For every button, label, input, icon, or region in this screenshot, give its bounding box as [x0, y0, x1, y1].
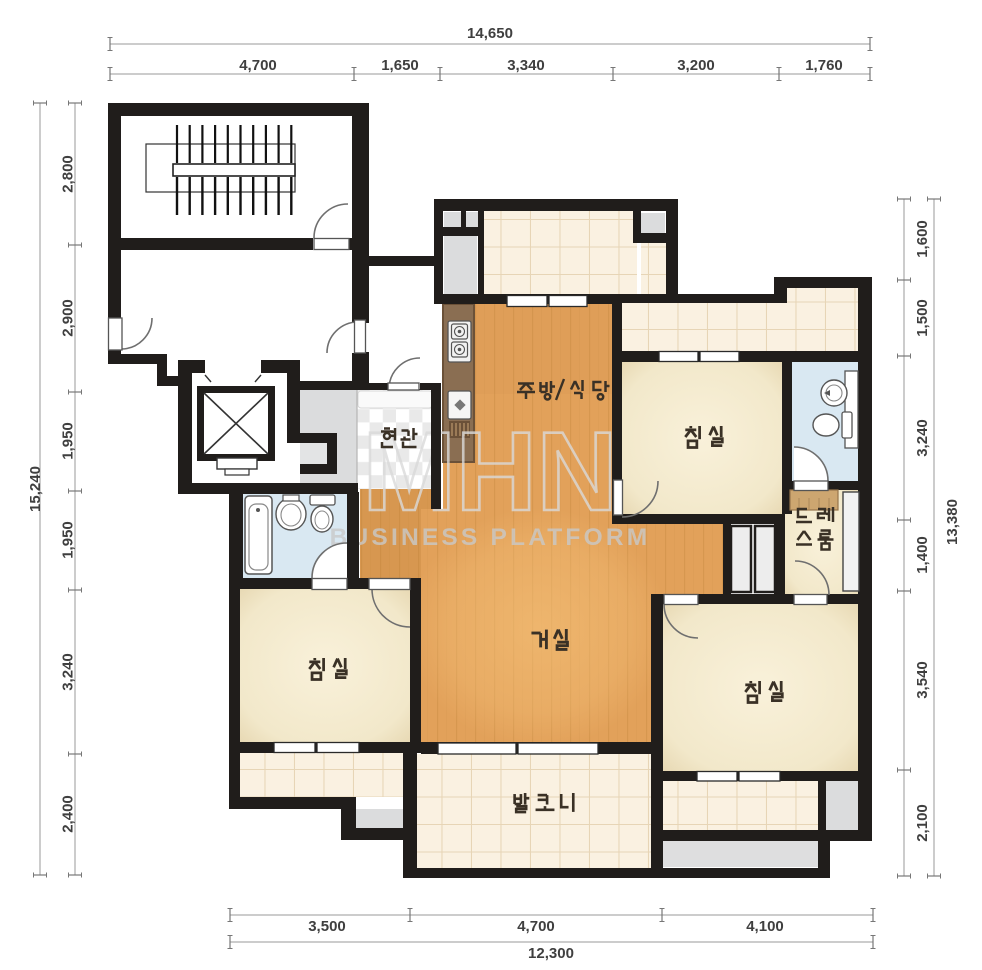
svg-text:MHN: MHN: [362, 409, 617, 534]
svg-text:4,100: 4,100: [746, 918, 784, 935]
svg-text:4,700: 4,700: [517, 918, 555, 935]
svg-text:3,540: 3,540: [914, 661, 931, 699]
svg-text:1,950: 1,950: [60, 521, 77, 559]
svg-text:3,240: 3,240: [914, 419, 931, 457]
svg-text:2,100: 2,100: [914, 804, 931, 842]
svg-text:3,340: 3,340: [507, 57, 545, 74]
svg-text:1,950: 1,950: [60, 422, 77, 460]
svg-text:3,240: 3,240: [60, 653, 77, 691]
svg-text:2,400: 2,400: [60, 795, 77, 833]
svg-text:13,380: 13,380: [944, 499, 961, 545]
svg-text:2,900: 2,900: [60, 299, 77, 337]
svg-text:14,650: 14,650: [467, 25, 513, 42]
svg-text:1,600: 1,600: [914, 220, 931, 258]
svg-text:1,760: 1,760: [805, 57, 843, 74]
svg-text:2,800: 2,800: [60, 155, 77, 193]
svg-text:15,240: 15,240: [27, 466, 44, 512]
svg-text:4,700: 4,700: [239, 57, 277, 74]
svg-text:3,200: 3,200: [677, 57, 715, 74]
svg-text:1,500: 1,500: [914, 299, 931, 337]
svg-text:1,650: 1,650: [381, 57, 419, 74]
svg-text:1,400: 1,400: [914, 536, 931, 574]
svg-text:3,500: 3,500: [308, 918, 346, 935]
svg-text:12,300: 12,300: [528, 945, 574, 962]
svg-text:BUSINESS PLATFORM: BUSINESS PLATFORM: [330, 524, 651, 551]
